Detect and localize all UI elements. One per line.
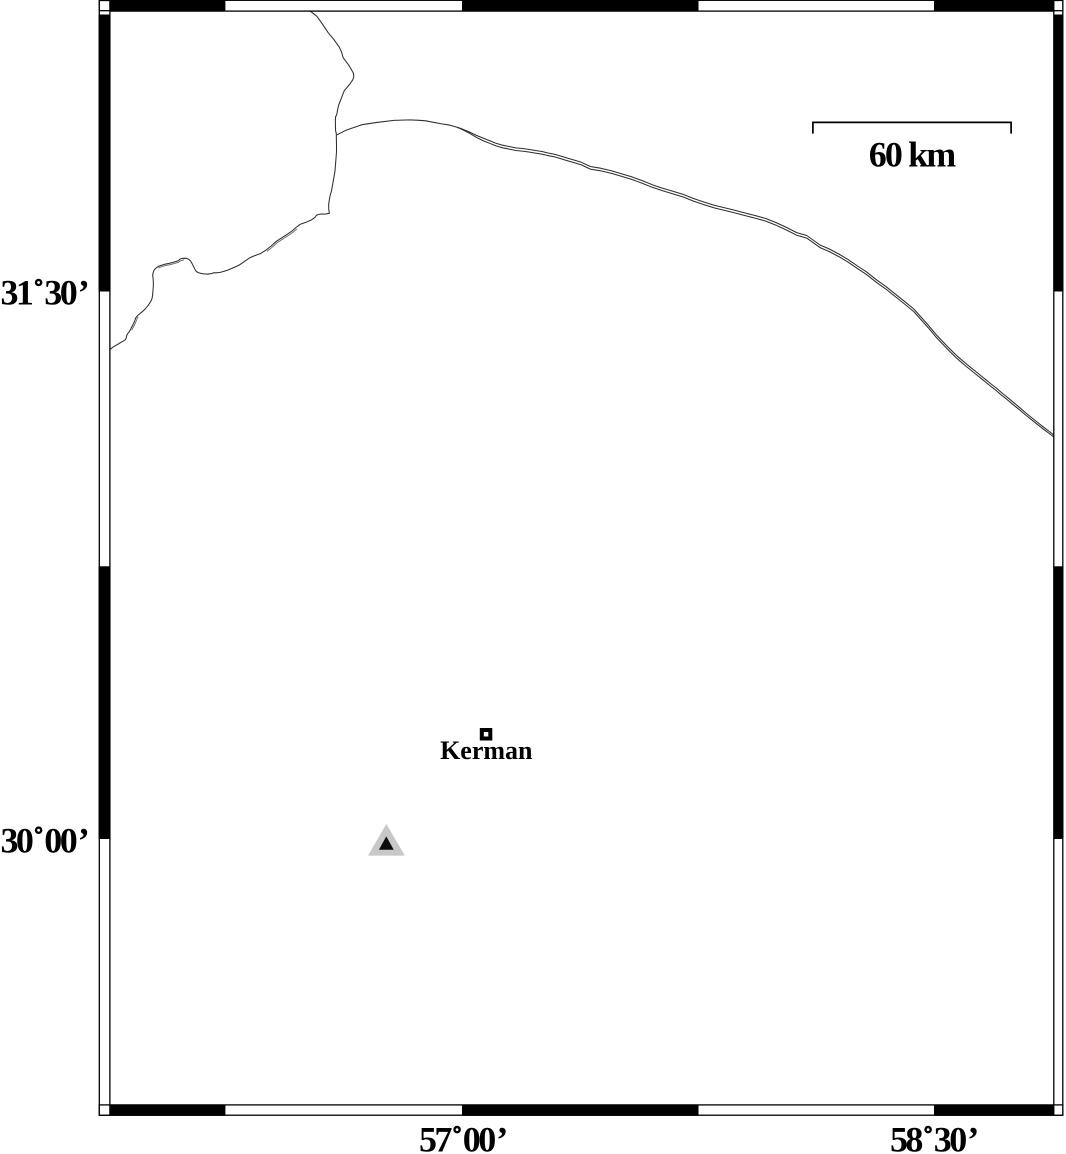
- svg-text:’: ’: [78, 820, 90, 860]
- svg-text:30: 30: [44, 273, 76, 313]
- svg-text:31: 31: [1, 273, 33, 313]
- svg-text:00: 00: [44, 820, 76, 860]
- svg-text:58: 58: [890, 1120, 922, 1154]
- svg-text:30: 30: [1, 820, 33, 860]
- svg-text:30: 30: [934, 1120, 966, 1154]
- svg-text:’: ’: [967, 1120, 979, 1154]
- svg-text:00: 00: [463, 1120, 495, 1154]
- svg-text:’: ’: [496, 1120, 508, 1154]
- svg-text:’: ’: [78, 273, 90, 313]
- svg-text:57: 57: [419, 1120, 452, 1154]
- svg-text:Kerman: Kerman: [440, 736, 533, 765]
- svg-text:60 km: 60 km: [869, 134, 956, 174]
